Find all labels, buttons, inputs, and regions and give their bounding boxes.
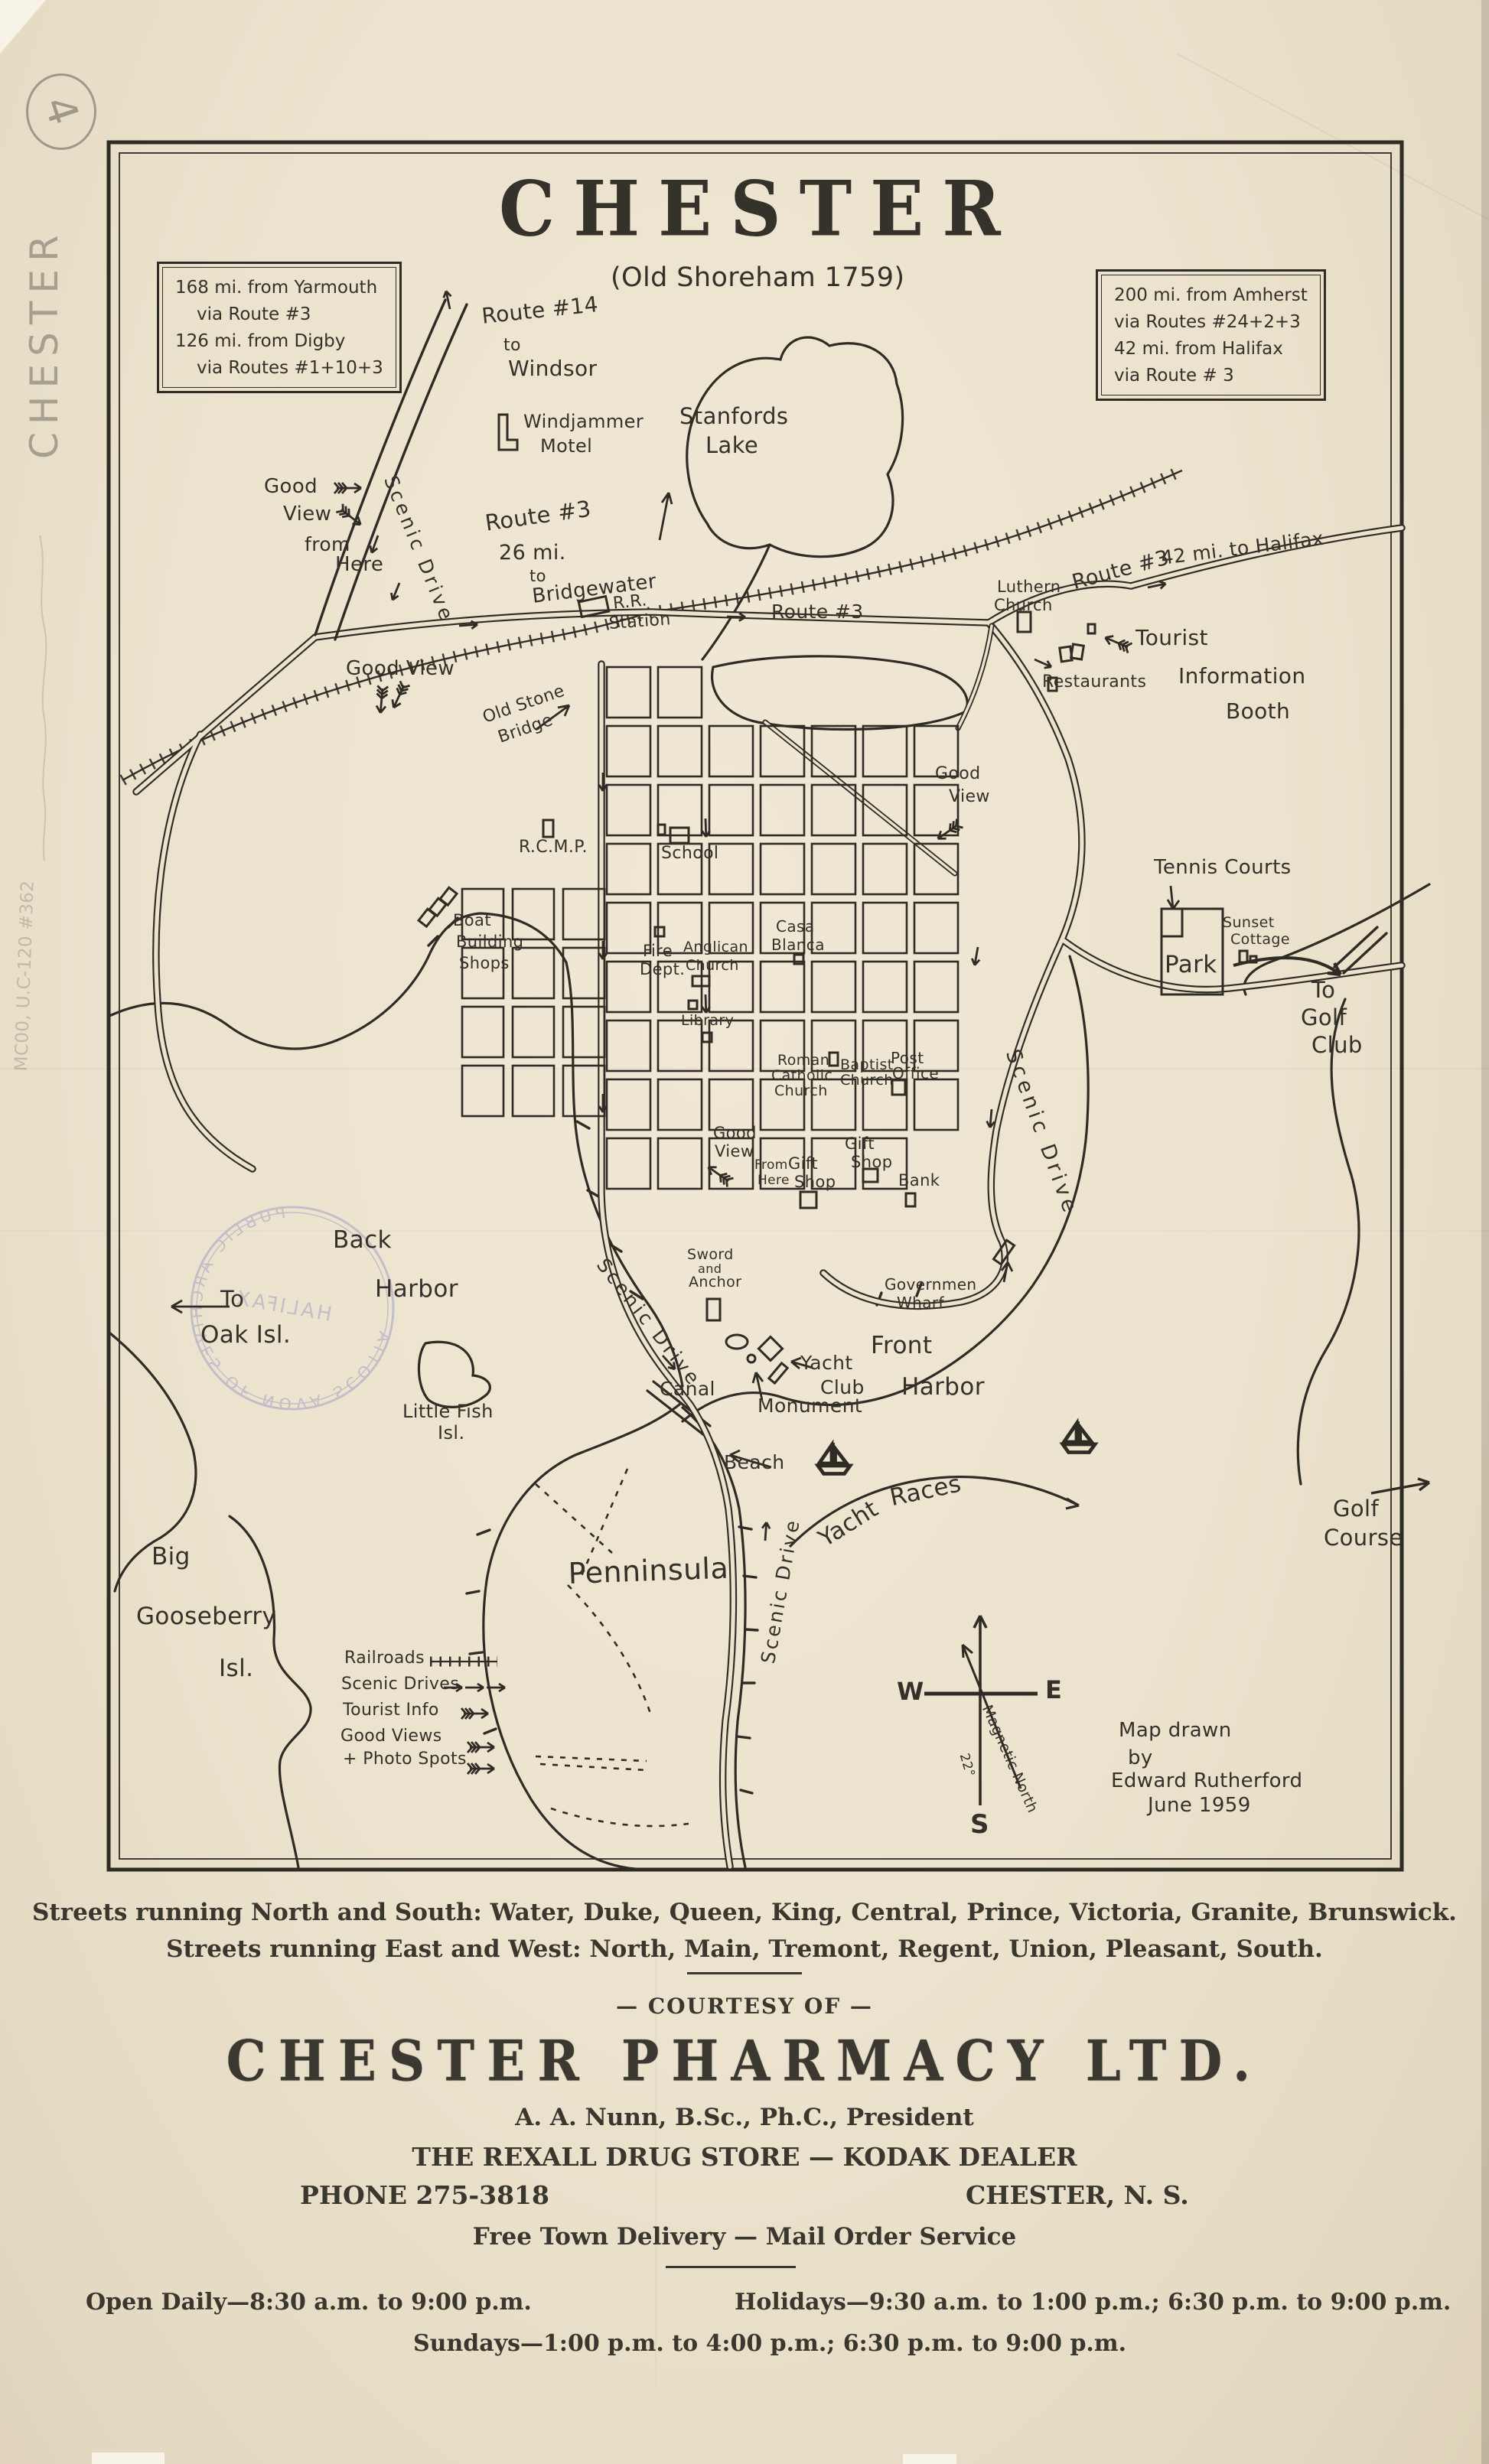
label-boat-building: Boat — [453, 912, 491, 930]
label-front-harbor: Harbor — [901, 1374, 985, 1401]
town-block — [761, 962, 804, 1012]
label-fire-dept: Dept. — [640, 961, 685, 979]
town-block — [513, 1007, 554, 1057]
sailboat-icon — [818, 1443, 850, 1474]
label-stanfords-lake: Lake — [705, 433, 758, 457]
label-anglican-church: Church — [686, 958, 739, 974]
compass-south: S — [970, 1810, 989, 1839]
town-block — [812, 726, 855, 776]
hours-sundays: Sundays—1:00 p.m. to 4:00 p.m.; 6:30 p.m… — [413, 2330, 1126, 2357]
label-good-view-w: Good View — [346, 658, 455, 680]
label-windjammer-motel: Motel — [540, 436, 592, 457]
label-beach: Beach — [724, 1452, 784, 1473]
distance-line: via Routes #24+2+3 — [1114, 309, 1308, 336]
label-route3-bridgewater: 26 mi. — [499, 542, 566, 565]
label-luthern-church: Church — [994, 597, 1053, 615]
town-block — [709, 785, 753, 835]
town-block — [513, 948, 554, 998]
map-subtitle: (Old Shoreham 1759) — [611, 263, 904, 293]
town-block — [607, 726, 650, 776]
town-block — [607, 844, 650, 894]
building-baptist-church — [829, 1053, 838, 1066]
label-casa-blanca: Casa — [776, 918, 815, 935]
distance-line: 200 mi. from Amherst — [1114, 282, 1308, 309]
pencil-scribble — [40, 535, 46, 861]
distance-line: via Route # 3 — [1114, 363, 1308, 389]
label-good-view-town: From — [754, 1158, 788, 1173]
label-school: School — [661, 845, 718, 864]
legend-photo-spots: + Photo Spots — [343, 1750, 467, 1769]
building-restaurant — [1060, 646, 1072, 662]
town-block — [812, 962, 855, 1012]
distance-box-nw: 168 mi. from Yarmouth via Route #3 126 m… — [157, 262, 402, 393]
label-rr-station: R.R. — [612, 591, 648, 614]
building-luthern-church — [1018, 612, 1031, 632]
label-bank: Bank — [898, 1172, 940, 1190]
town-block — [607, 1020, 650, 1071]
town-block — [812, 844, 855, 894]
distance-box-ne: 200 mi. from Amherst via Routes #24+2+3 … — [1096, 269, 1326, 401]
building-fire-dept — [655, 927, 664, 936]
label-stanfords-lake: Stanfords — [679, 404, 788, 428]
town-blocks — [462, 667, 958, 1189]
label-gift-shop-w: Gift — [788, 1155, 818, 1173]
map-credit: June 1959 — [1148, 1795, 1251, 1817]
label-golf-course: Golf — [1333, 1496, 1379, 1521]
label-post-office: Office — [892, 1065, 939, 1082]
courtesy-line: — COURTESY OF — — [0, 1994, 1489, 2019]
label-tourist-booth: Tourist — [1135, 626, 1208, 649]
label-restaurants: Restaurants — [1042, 673, 1146, 692]
label-front-harbor: Front — [871, 1333, 932, 1359]
building-bank — [906, 1193, 915, 1206]
legend-tourist-info: Tourist Info — [343, 1701, 439, 1720]
label-good-view-nw: View — [283, 503, 331, 526]
label-rcmp: R.C.M.P. — [519, 838, 588, 858]
town-block — [607, 1138, 650, 1189]
town-block — [914, 962, 958, 1012]
label-tennis-courts: Tennis Courts — [1154, 857, 1292, 879]
building-library — [689, 1001, 697, 1009]
small-pond — [726, 1335, 748, 1349]
label-to-oak-island: To — [220, 1287, 244, 1311]
label-good-view-town: View — [715, 1143, 754, 1161]
label-casa-blanca: Blanca — [771, 936, 825, 953]
label-little-fish-island: Isl. — [438, 1423, 464, 1444]
label-sunset-cottage: Sunset — [1223, 915, 1275, 931]
compass-west: W — [897, 1678, 924, 1706]
label-boat-building: Building — [456, 933, 523, 952]
town-block — [462, 1007, 503, 1057]
building-sunset-cottage — [1240, 951, 1247, 962]
store-line: THE REXALL DRUG STORE — KODAK DEALER — [0, 2142, 1489, 2172]
delivery-line: Free Town Delivery — Mail Order Service — [0, 2223, 1489, 2251]
label-good-view-nw: Here — [335, 554, 383, 576]
distance-line: 168 mi. from Yarmouth — [175, 275, 383, 301]
label-golf-course: Course — [1324, 1525, 1403, 1550]
label-baptist-church: Church — [840, 1073, 894, 1089]
town-block — [658, 726, 702, 776]
town-block — [658, 1079, 702, 1130]
town-block — [812, 785, 855, 835]
label-canal: Canal — [660, 1378, 715, 1400]
town-block — [863, 844, 907, 894]
town-block — [607, 667, 650, 718]
city-line: CHESTER, N. S. — [966, 2180, 1189, 2210]
divider-rule — [687, 1972, 802, 1974]
building-yacht-club — [758, 1336, 782, 1360]
phone-number: PHONE 275-3818 — [300, 2180, 549, 2210]
town-block — [863, 726, 907, 776]
label-gift-shop-w: Shop — [794, 1173, 836, 1192]
compass-east: E — [1045, 1677, 1062, 1704]
town-block — [513, 1066, 554, 1116]
label-route14: Windsor — [508, 356, 597, 380]
label-yacht-club: Yacht — [800, 1352, 853, 1374]
label-to-golf-club: To — [1311, 978, 1335, 1002]
label-little-fish-island: Little Fish — [402, 1401, 494, 1422]
circled-number-text: 4 — [34, 90, 89, 130]
town-block — [914, 903, 958, 953]
town-block — [607, 785, 650, 835]
label-big-gooseberry: Big — [152, 1544, 191, 1571]
label-route3-mid: Route #3 — [771, 601, 864, 623]
distance-line: 42 mi. from Halifax — [1114, 336, 1308, 363]
distance-line: via Route #3 — [175, 301, 383, 328]
crease-line — [655, 1958, 657, 2387]
label-gift-shop-e: Shop — [851, 1154, 892, 1172]
label-monument: Monument — [758, 1395, 862, 1417]
label-route14: to — [503, 337, 521, 356]
label-tourist-booth: Booth — [1226, 699, 1290, 723]
yacht-club-wharf — [769, 1363, 787, 1383]
building-sword-anchor — [707, 1299, 720, 1320]
building-rcmp — [543, 820, 553, 837]
legend-scenic-drives: Scenic Drives — [341, 1675, 459, 1694]
tennis-courts-square — [1162, 909, 1182, 936]
town-block — [761, 844, 804, 894]
monument-marker — [748, 1355, 755, 1362]
label-windjammer-motel: Windjammer — [523, 412, 643, 432]
label-good-view-nw: Good — [264, 476, 318, 498]
town-block — [709, 726, 753, 776]
building-school-annex — [658, 825, 665, 835]
scanned-map-page: PUBLIC ARCHIVES OF NOVA SCOTIA HALIFAX — [0, 0, 1489, 2464]
scan-edge — [92, 2453, 165, 2464]
label-big-gooseberry: Gooseberry — [136, 1603, 276, 1630]
label-sword-anchor: Anchor — [689, 1274, 741, 1291]
label-boat-building: Shops — [459, 955, 510, 973]
town-block — [607, 1079, 650, 1130]
town-block — [462, 1066, 503, 1116]
label-to-golf-club: Golf — [1301, 1005, 1347, 1030]
label-back-harbor: Back — [333, 1227, 392, 1254]
label-good-view-town: Here — [758, 1173, 790, 1188]
sailboat-icon — [1063, 1421, 1095, 1453]
label-park: Park — [1165, 952, 1217, 978]
label-good-view-e: Good — [935, 765, 981, 784]
label-government-wharf: Wharf — [897, 1294, 944, 1311]
town-block — [658, 1138, 702, 1189]
pharmacy-name: CHESTER PHARMACY LTD. — [0, 2029, 1489, 2095]
distance-line: via Routes #1+10+3 — [175, 355, 383, 382]
label-tourist-booth: Information — [1178, 664, 1305, 688]
map-credit: Edward Rutherford — [1111, 1770, 1302, 1792]
label-good-view-town: Good — [713, 1125, 757, 1143]
label-to-oak-island: Oak Isl. — [200, 1322, 291, 1349]
label-library: Library — [681, 1013, 734, 1029]
map-border-outer — [109, 142, 1402, 1870]
town-block — [658, 667, 702, 718]
label-good-view-e: View — [949, 788, 990, 807]
building-gift-shop — [800, 1192, 816, 1208]
president-line: A. A. Nunn, B.Sc., Ph.C., President — [0, 2104, 1489, 2131]
map-credit: Map drawn — [1119, 1720, 1232, 1742]
label-luthern-church: Luthern — [997, 578, 1061, 597]
label-anglican-church: Anglican — [683, 939, 748, 955]
label-big-gooseberry: Isl. — [219, 1655, 253, 1682]
label-fire-dept: Fire — [643, 942, 673, 961]
scan-edge — [903, 2454, 956, 2464]
building-restaurant — [1071, 644, 1084, 659]
map-credit: by — [1128, 1747, 1153, 1769]
label-penninsula: Penninsula — [568, 1552, 729, 1590]
town-block — [914, 1079, 958, 1130]
label-good-view-nw: from — [305, 534, 350, 555]
circled-number: 4 — [26, 73, 96, 150]
label-gift-shop-e: Gift — [845, 1135, 875, 1154]
hours-daily: Open Daily—8:30 a.m. to 9:00 p.m. — [86, 2289, 532, 2316]
label-government-wharf: Governmen — [885, 1276, 977, 1293]
distance-line: 126 mi. from Digby — [175, 328, 383, 355]
streets-east-west: Streets running East and West: North, Ma… — [0, 1935, 1489, 1963]
streets-north-south: Streets running North and South: Water, … — [0, 1899, 1489, 1926]
hours-holidays: Holidays—9:30 a.m. to 1:00 p.m.; 6:30 p.… — [735, 2289, 1451, 2316]
town-block — [863, 903, 907, 953]
building-windjammer-motel — [499, 415, 517, 450]
town-block — [709, 1079, 753, 1130]
map-title: CHESTER — [499, 167, 1019, 252]
trails — [536, 1469, 689, 1826]
town-block — [761, 785, 804, 835]
label-back-harbor: Harbor — [375, 1276, 458, 1303]
building-tourist-booth — [1088, 624, 1095, 633]
legend-railroads: Railroads — [344, 1649, 425, 1668]
divider-rule — [666, 2266, 796, 2268]
label-sunset-cottage: Cottage — [1230, 932, 1290, 948]
town-block — [863, 962, 907, 1012]
margin-note-chester: CHESTER — [23, 227, 66, 459]
legend-good-views: Good Views — [340, 1727, 442, 1746]
label-to-golf-club: Club — [1311, 1033, 1363, 1057]
label-roman-catholic: Church — [774, 1083, 828, 1099]
